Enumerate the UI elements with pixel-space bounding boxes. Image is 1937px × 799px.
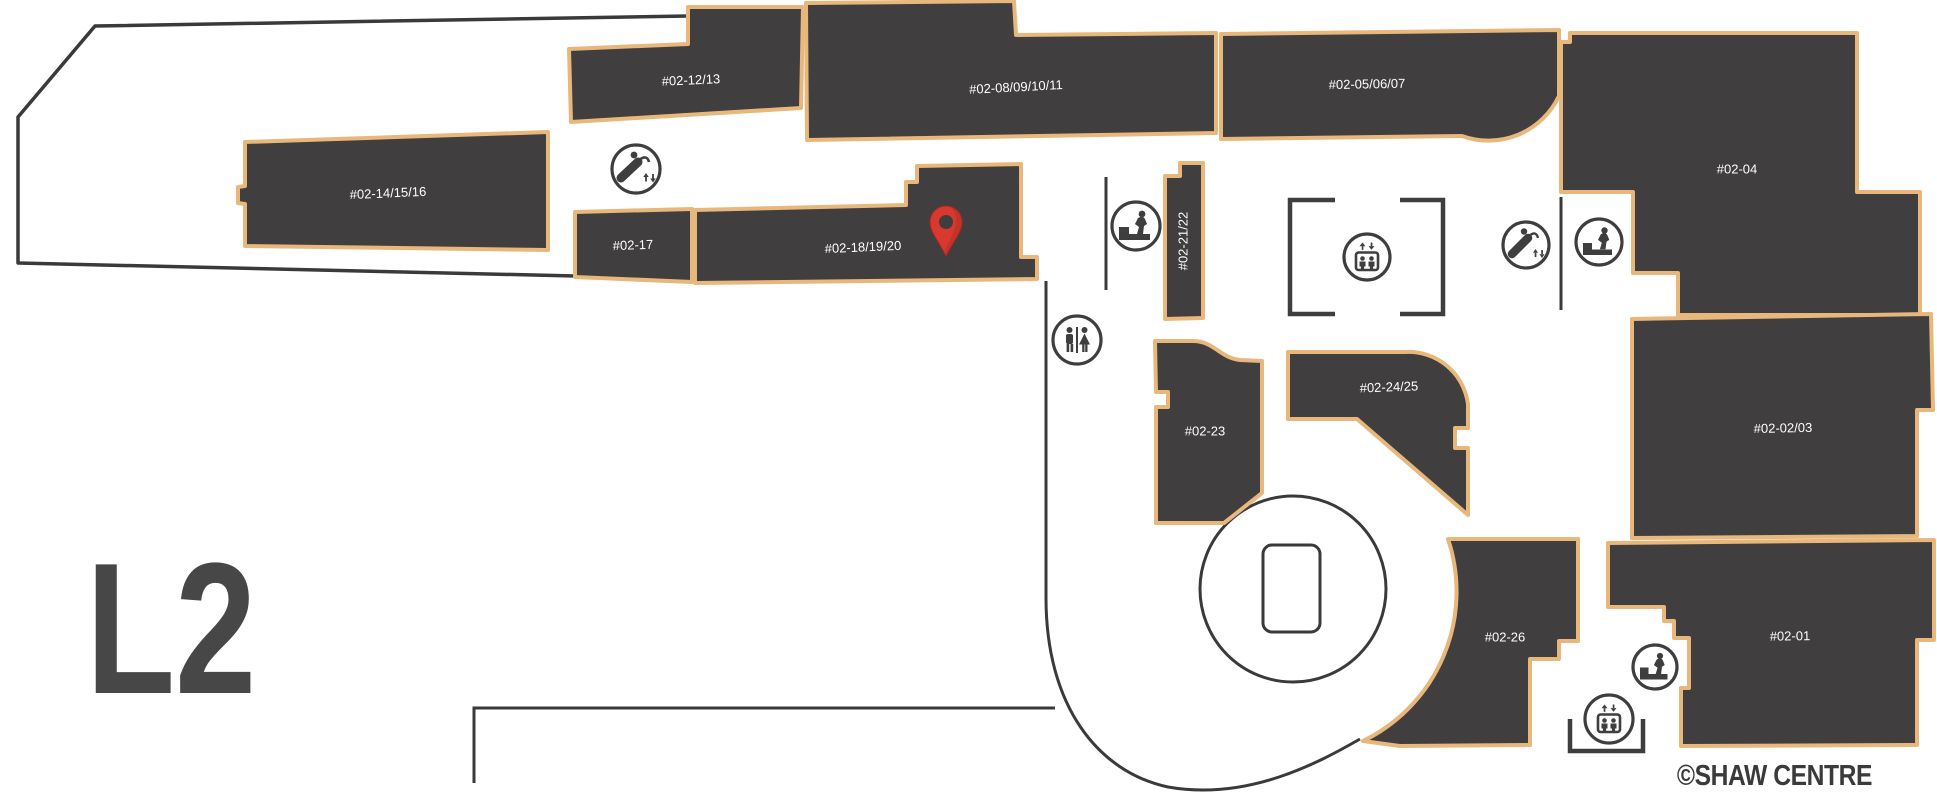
unit-label: #02-02/03 — [1754, 420, 1813, 436]
unit-02-23[interactable]: #02-23 — [1155, 341, 1262, 523]
unit-02-21-22[interactable]: #02-21/22 — [1165, 163, 1203, 319]
unit-label: #02-12/13 — [661, 71, 720, 89]
atrium — [1200, 496, 1386, 682]
atrium-lift-shaft — [1263, 545, 1320, 632]
unit-label: #02-26 — [1485, 629, 1525, 644]
unit-02-26[interactable]: #02-26 — [1363, 539, 1578, 746]
escalator-icon — [1503, 222, 1549, 268]
elevator-icon — [1344, 234, 1390, 280]
pin-hole — [939, 215, 953, 229]
floor-level-label: L2 — [86, 524, 256, 734]
stairs-icon — [1112, 202, 1160, 250]
unit-02-04[interactable]: #02-04 — [1561, 33, 1920, 315]
bracket-left — [1290, 200, 1335, 314]
unit-02-18-19-20[interactable]: #02-18/19/20 — [695, 164, 1037, 283]
floor-plan-canvas: #02-12/13 #02-08/09/10/11 #02-05/06/07 #… — [0, 0, 1937, 799]
unit-02-01[interactable]: #02-01 — [1608, 540, 1934, 746]
floor-plan-svg: #02-12/13 #02-08/09/10/11 #02-05/06/07 #… — [0, 0, 1937, 799]
unit-label: #02-17 — [612, 237, 653, 253]
unit-02-02-03[interactable]: #02-02/03 — [1632, 314, 1933, 538]
unit-02-05-06-07[interactable]: #02-05/06/07 — [1221, 30, 1559, 141]
walkway-bottom-line — [474, 708, 1055, 783]
unit-label: #02-23 — [1185, 423, 1225, 438]
unit-02-08-09-10-11[interactable]: #02-08/09/10/11 — [806, 1, 1216, 140]
stairs-icon — [1633, 645, 1677, 689]
bracket-right — [1400, 200, 1443, 314]
escalator-icon — [612, 145, 660, 193]
unit-02-24-25[interactable]: #02-24/25 — [1288, 352, 1468, 515]
unit-02-12-13[interactable]: #02-12/13 — [569, 7, 803, 122]
unit-label: #02-24/25 — [1359, 378, 1418, 395]
unit-label: #02-04 — [1717, 161, 1757, 176]
unit-02-17[interactable]: #02-17 — [575, 209, 692, 282]
restroom-icon — [1053, 316, 1101, 364]
units-layer: #02-12/13 #02-08/09/10/11 #02-05/06/07 #… — [238, 1, 1934, 746]
elevator-icon — [1585, 695, 1633, 743]
atrium-circle — [1200, 496, 1386, 682]
unit-label: #02-05/06/07 — [1329, 76, 1406, 92]
unit-label: #02-01 — [1770, 628, 1811, 644]
unit-02-14-15-16[interactable]: #02-14/15/16 — [238, 132, 548, 250]
unit-label: #02-21/22 — [1175, 212, 1190, 271]
stairs-icon — [1576, 219, 1622, 265]
copyright-label: ©SHAW CENTRE — [1677, 759, 1872, 791]
